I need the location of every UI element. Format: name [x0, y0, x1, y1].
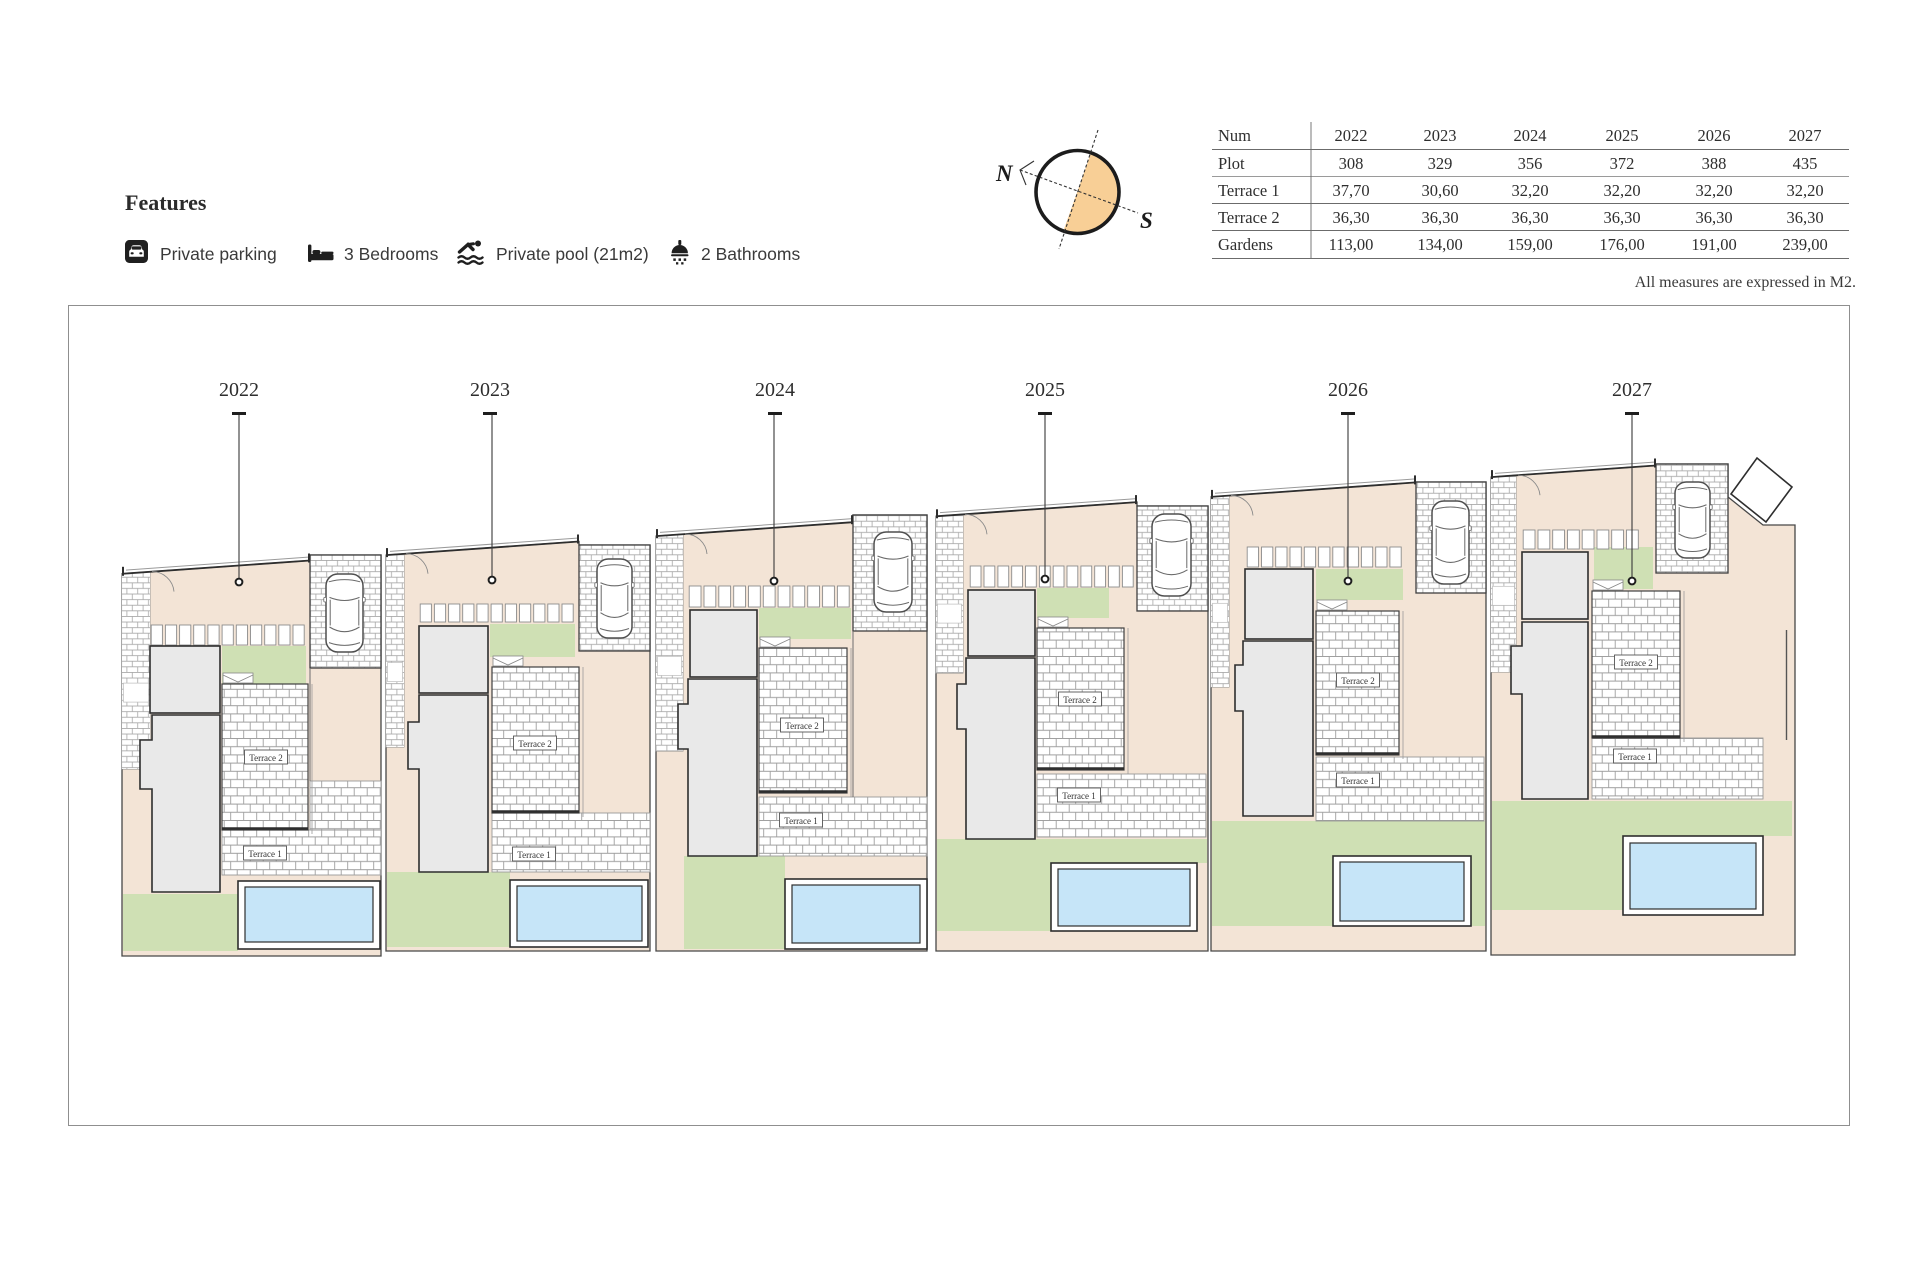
- svg-text:372: 372: [1610, 154, 1635, 173]
- svg-text:Terrace 2: Terrace 2: [785, 721, 819, 731]
- svg-text:Terrace 1: Terrace 1: [1341, 776, 1375, 786]
- svg-text:36,30: 36,30: [1786, 208, 1823, 227]
- svg-text:Terrace 1: Terrace 1: [784, 816, 818, 826]
- svg-text:Terrace 2: Terrace 2: [518, 739, 552, 749]
- svg-text:N: N: [995, 161, 1014, 186]
- svg-text:191,00: 191,00: [1691, 235, 1736, 254]
- svg-text:2024: 2024: [1514, 126, 1547, 145]
- svg-text:36,30: 36,30: [1511, 208, 1548, 227]
- svg-text:2022: 2022: [1335, 126, 1368, 145]
- svg-text:32,20: 32,20: [1695, 181, 1732, 200]
- svg-text:134,00: 134,00: [1417, 235, 1462, 254]
- svg-text:356: 356: [1518, 154, 1543, 173]
- svg-text:2027: 2027: [1612, 379, 1652, 401]
- svg-text:S: S: [1140, 208, 1153, 233]
- svg-text:Terrace 2: Terrace 2: [1218, 208, 1280, 227]
- svg-text:Terrace 1: Terrace 1: [1218, 181, 1280, 200]
- svg-text:Terrace 2: Terrace 2: [1063, 695, 1097, 705]
- svg-text:308: 308: [1339, 154, 1364, 173]
- svg-text:2023: 2023: [1424, 126, 1457, 145]
- svg-text:2025: 2025: [1606, 126, 1639, 145]
- svg-text:Terrace 1: Terrace 1: [1062, 791, 1096, 801]
- svg-text:All measures are expressed in: All measures are expressed in M2.: [1635, 274, 1856, 291]
- svg-text:Terrace 2: Terrace 2: [1619, 658, 1653, 668]
- svg-text:113,00: 113,00: [1329, 235, 1374, 254]
- svg-text:36,30: 36,30: [1421, 208, 1458, 227]
- svg-text:435: 435: [1793, 154, 1818, 173]
- svg-text:Terrace 1: Terrace 1: [517, 850, 551, 860]
- svg-text:36,30: 36,30: [1332, 208, 1369, 227]
- svg-text:2025: 2025: [1025, 379, 1065, 401]
- svg-text:32,20: 32,20: [1511, 181, 1548, 200]
- svg-text:Plot: Plot: [1218, 154, 1245, 173]
- svg-text:159,00: 159,00: [1507, 235, 1552, 254]
- svg-text:2023: 2023: [470, 379, 510, 401]
- svg-text:329: 329: [1428, 154, 1453, 173]
- svg-text:Terrace 2: Terrace 2: [1341, 676, 1375, 686]
- svg-text:Terrace 1: Terrace 1: [1618, 752, 1652, 762]
- svg-text:Terrace 1: Terrace 1: [248, 849, 282, 859]
- svg-text:2024: 2024: [755, 379, 795, 401]
- svg-text:3 Bedrooms: 3 Bedrooms: [344, 244, 439, 264]
- svg-text:2027: 2027: [1789, 126, 1822, 145]
- svg-text:2026: 2026: [1698, 126, 1731, 145]
- svg-text:Num: Num: [1218, 126, 1251, 145]
- svg-text:176,00: 176,00: [1599, 235, 1644, 254]
- svg-text:239,00: 239,00: [1782, 235, 1827, 254]
- svg-text:36,30: 36,30: [1695, 208, 1732, 227]
- svg-text:36,30: 36,30: [1603, 208, 1640, 227]
- svg-text:32,20: 32,20: [1603, 181, 1640, 200]
- svg-text:Private parking: Private parking: [160, 244, 277, 264]
- svg-text:32,20: 32,20: [1786, 181, 1823, 200]
- svg-text:388: 388: [1702, 154, 1727, 173]
- svg-text:30,60: 30,60: [1421, 181, 1458, 200]
- svg-text:Features: Features: [125, 190, 207, 215]
- svg-text:Private pool (21m2): Private pool (21m2): [496, 244, 649, 264]
- svg-text:2 Bathrooms: 2 Bathrooms: [701, 244, 800, 264]
- svg-text:37,70: 37,70: [1332, 181, 1369, 200]
- svg-text:2026: 2026: [1328, 379, 1368, 401]
- svg-text:2022: 2022: [219, 379, 259, 401]
- svg-text:Gardens: Gardens: [1218, 235, 1273, 254]
- svg-text:Terrace 2: Terrace 2: [249, 753, 283, 763]
